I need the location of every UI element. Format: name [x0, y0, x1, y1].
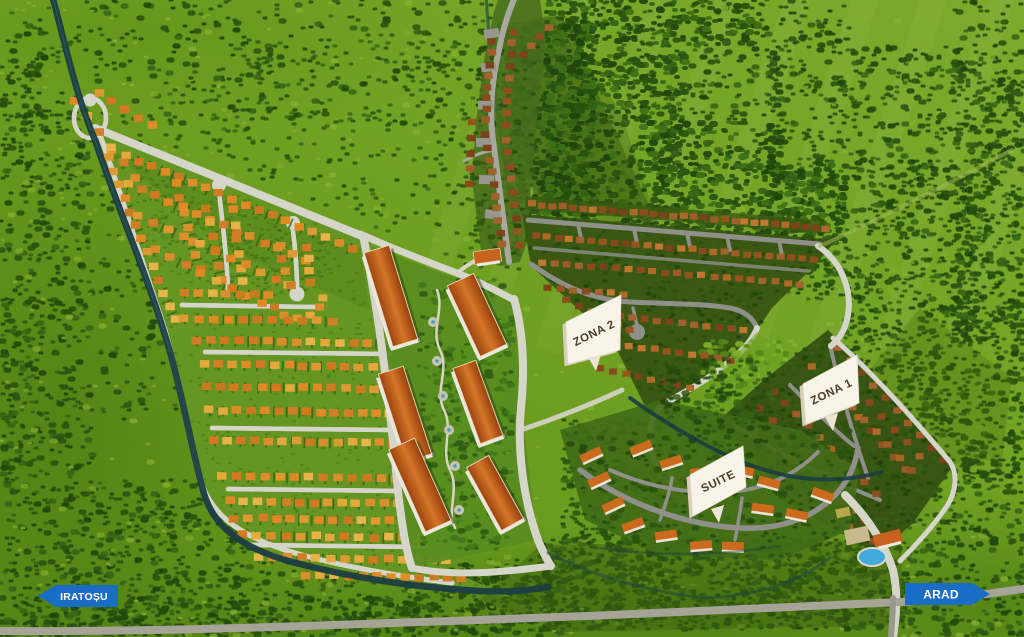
svg-text:ARAD: ARAD: [923, 587, 959, 601]
svg-text:IRATOȘU: IRATOȘU: [60, 591, 108, 603]
